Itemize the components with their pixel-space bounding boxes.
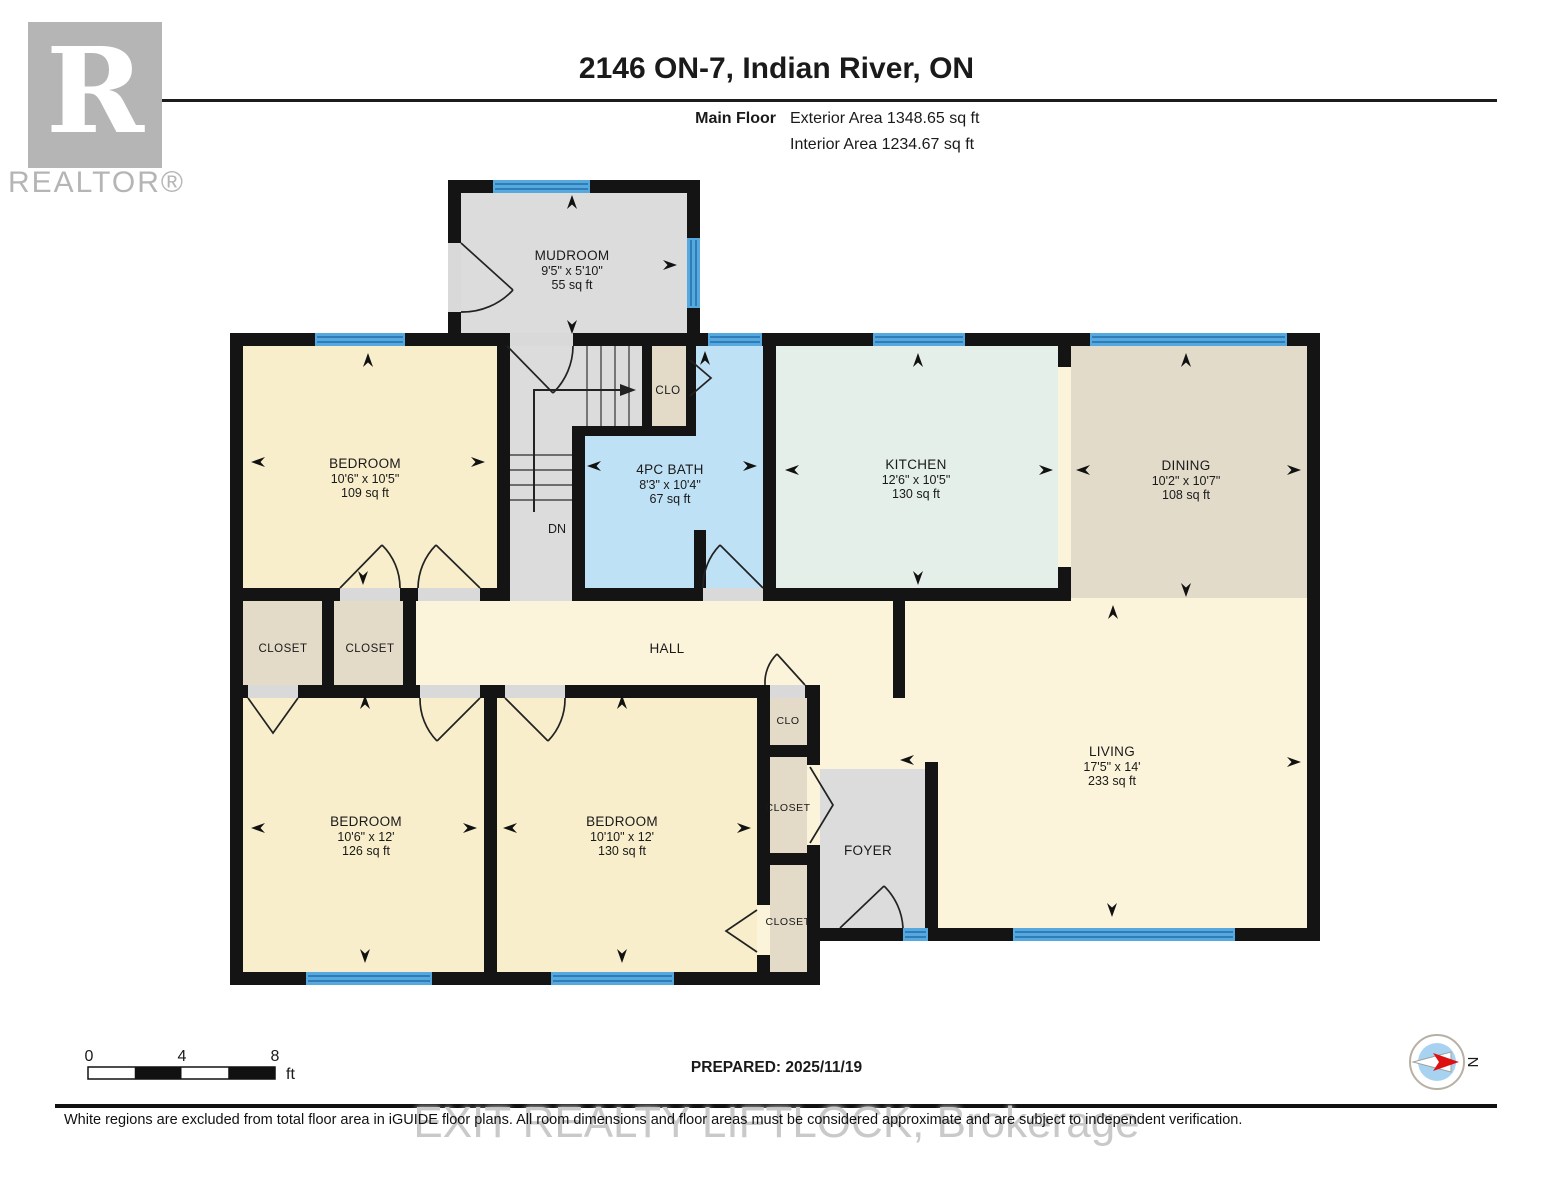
foyer-label: FOYER [844,843,892,858]
kitchen-dims: 12'6" x 10'5" [882,473,951,487]
window [1090,333,1287,346]
closet-mid-label: CLOSET [765,802,810,814]
kitchen-area: 130 sq ft [892,487,940,501]
bath-dims: 8'3" x 10'4" [639,478,701,492]
window [315,333,405,346]
bedroom-top-name: BEDROOM [329,456,401,471]
dining-area: 108 sq ft [1162,488,1210,502]
realtor-logo: R [28,22,162,168]
floor-plan-page: R REALTOR® 2146 ON-7, Indian River, ON M… [0,0,1553,1200]
bedroom-mid-dims: 10'10" x 12' [590,830,654,844]
bedroom-top-dims: 10'6" x 10'5" [331,472,400,486]
dining-name: DINING [1161,458,1210,473]
clo-small-label: CLO [776,715,799,727]
mudroom-area: 55 sq ft [552,278,594,292]
prepared-date: PREPARED: 2025/11/19 [0,1059,1553,1077]
bath-name: 4PC BATH [636,462,703,477]
bedroom-mid-name: BEDROOM [586,814,658,829]
bedroom-top-area: 109 sq ft [341,486,389,500]
window [903,928,928,941]
living-name: LIVING [1089,744,1135,759]
stairs-floor-lower [510,436,572,601]
hall-label: HALL [650,641,685,656]
window [493,180,590,193]
bath-closet-label: CLO [655,385,680,397]
window [1013,928,1235,941]
bedroom-left-area: 126 sq ft [342,844,390,858]
window [306,972,432,985]
bedroom-left-name: BEDROOM [330,814,402,829]
floor-plan-svg: MUDROOM 9'5" x 5'10" 55 sq ft BEDROOM 10… [0,0,1553,1200]
window [708,333,762,346]
disclaimer-text: White regions are excluded from total fl… [64,1112,1494,1128]
bedroom-mid-area: 130 sq ft [598,844,646,858]
closet-bottom-label: CLOSET [765,916,810,928]
mudroom-dims: 9'5" x 5'10" [541,264,603,278]
living-dims: 17'5" x 14' [1083,760,1140,774]
window [687,238,700,308]
stairs-down-label: DN [548,522,566,536]
bath-floor [585,436,763,588]
living-area: 233 sq ft [1088,774,1136,788]
bath-area: 67 sq ft [650,492,692,506]
closet1-label: CLOSET [258,643,307,655]
realtor-wordmark: REALTOR® [8,166,185,200]
kitchen-name: KITCHEN [885,457,946,472]
bedroom-left-dims: 10'6" x 12' [337,830,394,844]
dining-dims: 10'2" x 10'7" [1152,474,1221,488]
window [551,972,674,985]
closet2-label: CLOSET [345,643,394,655]
mudroom-name: MUDROOM [535,248,610,263]
realtor-logo-letter: R [46,32,144,150]
window [873,333,965,346]
